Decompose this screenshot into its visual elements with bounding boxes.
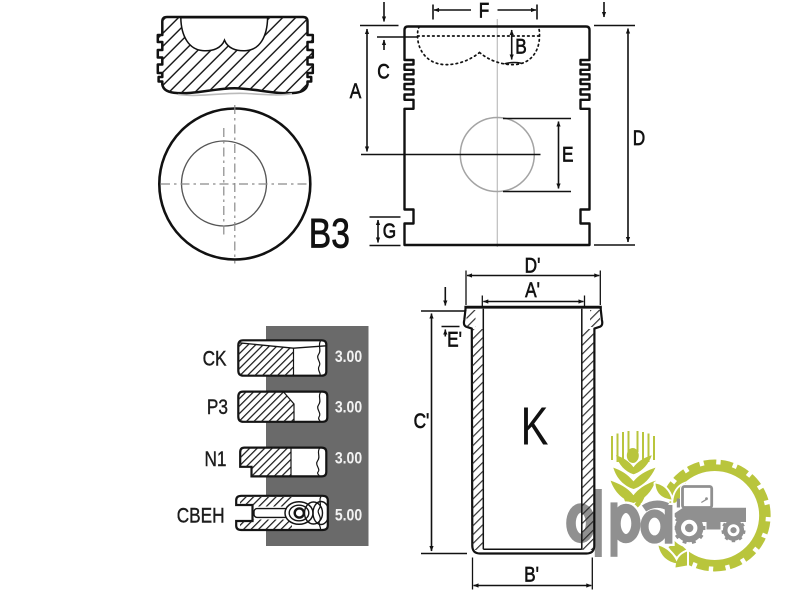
svg-text:B: B bbox=[515, 36, 526, 59]
svg-text:F: F bbox=[479, 0, 490, 23]
svg-text:3.00: 3.00 bbox=[335, 398, 362, 416]
svg-text:B': B' bbox=[524, 564, 539, 587]
svg-text:D': D' bbox=[525, 255, 541, 278]
svg-text:CK: CK bbox=[203, 348, 227, 371]
svg-text:C: C bbox=[377, 61, 390, 84]
svg-text:E': E' bbox=[447, 329, 462, 352]
svg-text:E: E bbox=[562, 144, 573, 167]
svg-text:3.00: 3.00 bbox=[335, 348, 362, 366]
svg-text:3.00: 3.00 bbox=[335, 449, 362, 467]
svg-text:D: D bbox=[633, 128, 645, 151]
svg-text:5.00: 5.00 bbox=[335, 506, 362, 524]
svg-text:N1: N1 bbox=[204, 449, 226, 472]
svg-text:K: K bbox=[521, 398, 549, 457]
svg-text:CBEH: CBEH bbox=[177, 505, 225, 528]
svg-text:G: G bbox=[383, 221, 396, 244]
svg-text:A: A bbox=[350, 81, 362, 104]
svg-text:P3: P3 bbox=[207, 397, 228, 420]
svg-text:A': A' bbox=[525, 280, 540, 303]
svg-text:B3: B3 bbox=[309, 211, 350, 257]
svg-text:C': C' bbox=[414, 411, 430, 434]
